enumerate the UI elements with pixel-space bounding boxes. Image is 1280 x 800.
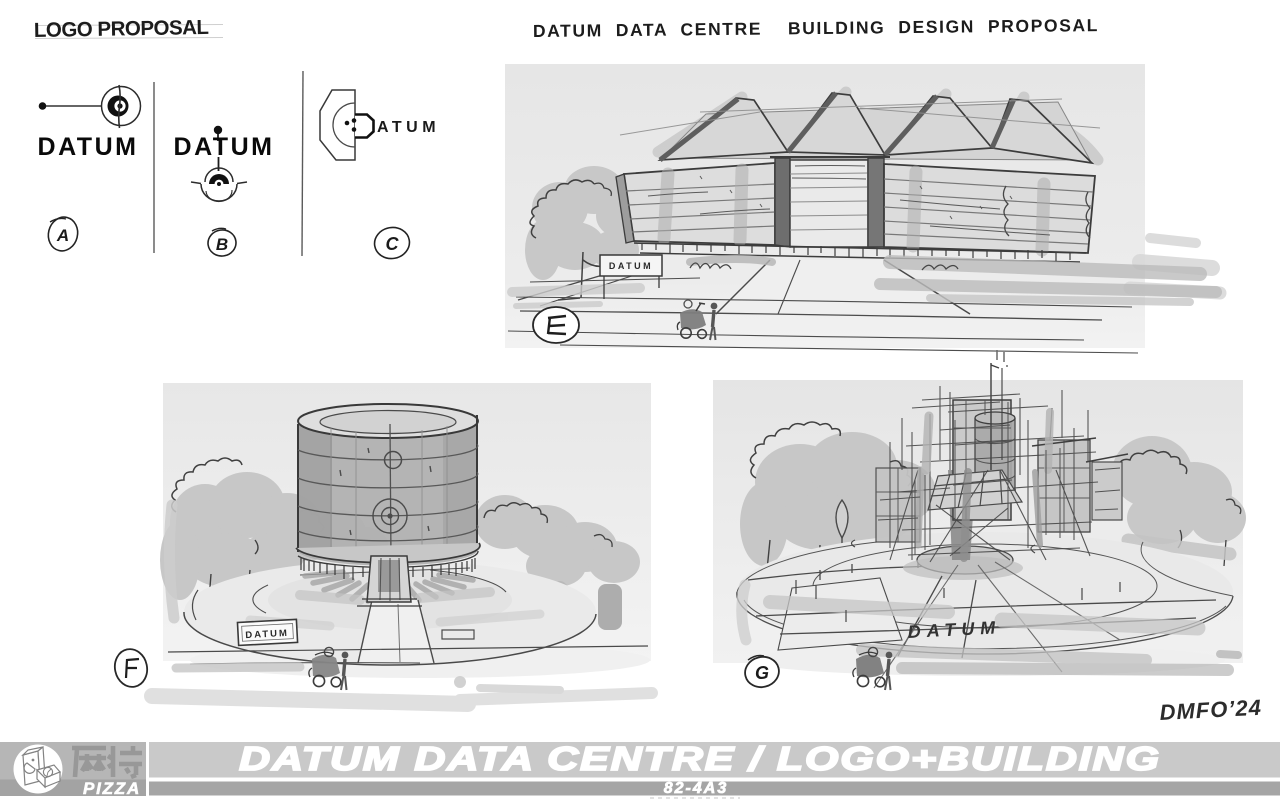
svg-text:DATUM: DATUM (609, 261, 653, 271)
svg-text:G: G (755, 663, 769, 683)
svg-text:B: B (216, 235, 228, 254)
svg-text:DATUM: DATUM (38, 133, 139, 161)
svg-text:A: A (56, 226, 69, 245)
svg-text:LOGO PROPOSAL: LOGO PROPOSAL (34, 16, 209, 42)
svg-text:C: C (386, 234, 400, 254)
svg-text:ATUM: ATUM (377, 119, 440, 136)
svg-text:82-4A3: 82-4A3 (664, 780, 728, 797)
svg-text:DATUM DATA CENTRE / LOGO+BUILD: DATUM DATA CENTRE / LOGO+BUILDING (239, 741, 1161, 778)
svg-text:DATUM: DATUM (174, 133, 275, 161)
svg-text:DMFO’24: DMFO’24 (1159, 695, 1263, 725)
svg-text:PIZZA: PIZZA (83, 779, 141, 798)
svg-text:DATUM: DATUM (245, 628, 289, 641)
